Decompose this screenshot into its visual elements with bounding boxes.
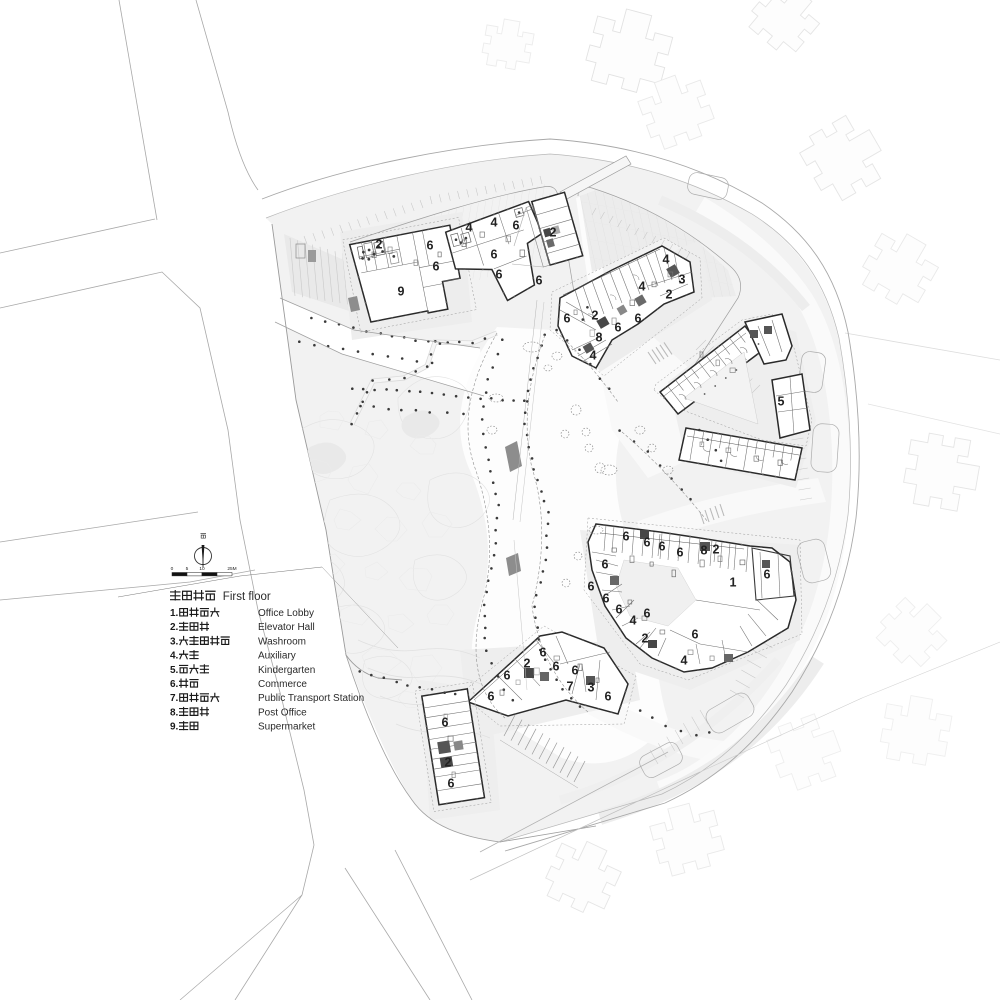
svg-text:6: 6: [605, 690, 612, 704]
svg-text:6: 6: [433, 260, 440, 274]
svg-text:8: 8: [701, 544, 708, 558]
svg-text:4: 4: [491, 216, 498, 230]
svg-text:6: 6: [764, 568, 771, 582]
svg-text:Auxiliary: Auxiliary: [258, 651, 296, 662]
svg-text:25M: 25M: [227, 566, 236, 572]
svg-text:1.: 1.: [170, 608, 179, 619]
svg-text:6: 6: [644, 536, 651, 550]
svg-text:6: 6: [677, 546, 684, 560]
svg-text:6: 6: [588, 580, 595, 594]
svg-text:First floor: First floor: [223, 591, 271, 603]
svg-text:2: 2: [642, 632, 649, 646]
svg-text:6: 6: [496, 268, 503, 282]
svg-text:2: 2: [550, 226, 557, 240]
svg-text:Public Transport Station: Public Transport Station: [258, 693, 364, 704]
svg-text:2.: 2.: [170, 622, 179, 633]
svg-text:9: 9: [398, 285, 405, 299]
svg-text:6: 6: [427, 239, 434, 253]
svg-text:8: 8: [596, 331, 603, 345]
svg-text:4: 4: [590, 349, 597, 363]
svg-text:6: 6: [623, 530, 630, 544]
svg-text:6: 6: [488, 690, 495, 704]
svg-text:2: 2: [592, 309, 599, 323]
svg-text:Post Office: Post Office: [258, 707, 307, 718]
svg-text:6: 6: [615, 321, 622, 335]
svg-text:7: 7: [567, 680, 574, 694]
svg-text:6: 6: [616, 603, 623, 617]
svg-text:5.: 5.: [170, 665, 179, 676]
svg-text:6: 6: [564, 312, 571, 326]
svg-text:Office Lobby: Office Lobby: [258, 608, 314, 619]
svg-text:5: 5: [186, 566, 189, 572]
svg-text:2: 2: [376, 238, 383, 252]
svg-text:Elevator Hall: Elevator Hall: [258, 622, 315, 633]
svg-text:6: 6: [635, 312, 642, 326]
svg-text:6: 6: [540, 646, 547, 660]
svg-text:Washroom: Washroom: [258, 636, 306, 647]
svg-text:6: 6: [448, 777, 455, 791]
svg-text:Commerce: Commerce: [258, 679, 307, 690]
svg-text:9.: 9.: [170, 722, 179, 733]
svg-text:8.: 8.: [170, 707, 179, 718]
svg-text:3: 3: [588, 681, 595, 695]
svg-text:6: 6: [442, 716, 449, 730]
svg-text:2: 2: [713, 543, 720, 557]
svg-text:6: 6: [513, 219, 520, 233]
svg-text:6: 6: [659, 540, 666, 554]
svg-text:3.: 3.: [170, 636, 179, 647]
svg-text:6: 6: [491, 248, 498, 262]
svg-text:6: 6: [553, 660, 560, 674]
svg-text:6: 6: [644, 607, 651, 621]
svg-text:7.: 7.: [170, 693, 179, 704]
svg-text:4.: 4.: [170, 651, 179, 662]
svg-text:2: 2: [524, 657, 531, 671]
svg-text:6: 6: [572, 664, 579, 678]
svg-text:4: 4: [681, 654, 688, 668]
svg-text:1: 1: [730, 576, 737, 590]
svg-text:4: 4: [639, 280, 646, 294]
svg-text:4: 4: [466, 221, 473, 235]
svg-text:6: 6: [536, 274, 543, 288]
svg-text:4: 4: [630, 614, 637, 628]
svg-text:5: 5: [778, 395, 785, 409]
svg-text:2: 2: [666, 288, 673, 302]
svg-text:6: 6: [603, 592, 610, 606]
svg-text:4: 4: [663, 253, 670, 267]
svg-text:6.: 6.: [170, 679, 179, 690]
svg-text:6: 6: [602, 558, 609, 572]
svg-text:6: 6: [692, 628, 699, 642]
svg-text:3: 3: [679, 273, 686, 287]
svg-text:Kindergarten: Kindergarten: [258, 665, 315, 676]
svg-text:Supermarket: Supermarket: [258, 722, 315, 733]
svg-text:10: 10: [199, 566, 205, 572]
svg-text:2: 2: [445, 756, 452, 770]
svg-text:0: 0: [171, 566, 174, 572]
svg-text:6: 6: [504, 669, 511, 683]
